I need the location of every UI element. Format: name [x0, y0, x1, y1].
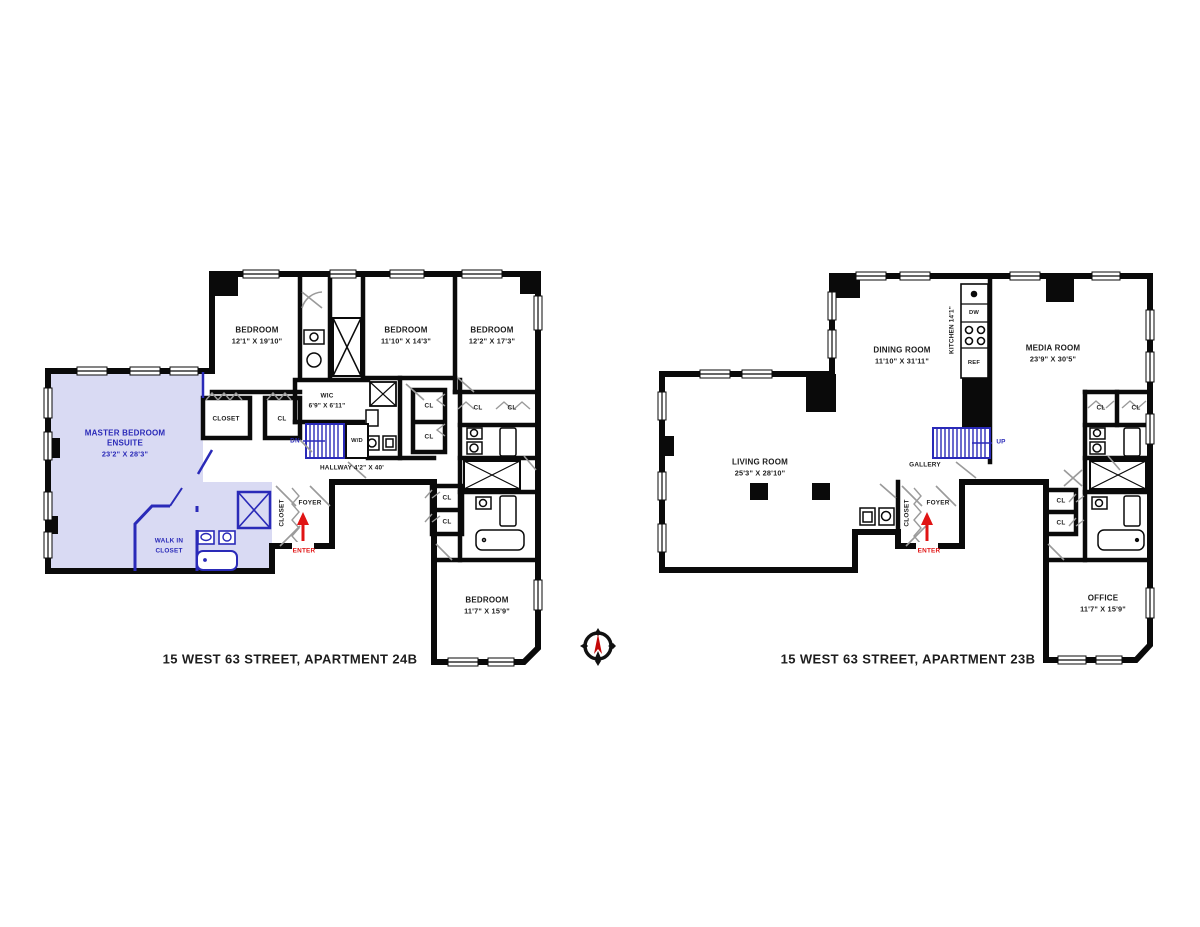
room-label-foyer: FOYER	[298, 500, 321, 507]
room-label-gallery: GALLERY	[909, 462, 941, 469]
room-dims-bedroom-n: 11'10" X 14'3"	[381, 337, 431, 346]
cl-label: CL	[425, 434, 434, 441]
toilet-icon	[307, 353, 321, 367]
stairs-dn-label: DN	[290, 438, 300, 445]
room-dims-dining: 11'10" X 31'11"	[875, 357, 929, 366]
room-label-kitchen: KITCHEN 14'1"	[949, 306, 956, 354]
plan-title-23b: 15 WEST 63 STREET, APARTMENT 23B	[781, 652, 1036, 667]
stairs-up-label: UP	[996, 439, 1005, 446]
room-label-master-bedroom: MASTER BEDROOM	[85, 429, 166, 438]
room-dims-living: 25'3" X 28'10"	[735, 469, 786, 478]
room-label-living: LIVING ROOM	[732, 458, 788, 467]
stairs-up-icon	[933, 428, 992, 458]
room-label-master-ensuite: ENSUITE	[107, 439, 143, 448]
compass-icon	[575, 620, 621, 676]
room-label-wic: WIC	[320, 393, 333, 400]
room-label-bedroom-s: BEDROOM	[465, 596, 508, 605]
bathtub-icon	[1124, 496, 1140, 526]
floorplan-page: MASTER BEDROOM ENSUITE 23'2" X 28'3" BED…	[0, 0, 1200, 927]
foyer-closet-label: CLOSET	[904, 499, 911, 526]
room-label-foyer: FOYER	[926, 500, 949, 507]
cl-label: CL	[474, 405, 483, 412]
room-dims-media: 23'9" X 30'5"	[1030, 355, 1076, 364]
bathtub-icon	[197, 551, 237, 570]
room-label-walk-in-closet2: CLOSET	[155, 548, 182, 555]
enter-label: ENTER	[918, 548, 941, 555]
room-label-bedroom-n: BEDROOM	[384, 326, 427, 335]
cl-label: CL	[443, 495, 452, 502]
room-label-hallway: HALLWAY 4'2" X 40'	[320, 465, 384, 472]
cl-label: CL	[1132, 405, 1141, 412]
linen-closet-icon	[370, 382, 396, 406]
room-label-bedroom-nw: BEDROOM	[235, 326, 278, 335]
washer-dryer-label: W/D	[351, 438, 363, 444]
bathtub-icon	[500, 496, 516, 526]
room-label-bedroom-ne: BEDROOM	[470, 326, 513, 335]
room-dims-bedroom-ne: 12'2" X 17'3"	[469, 337, 515, 346]
shower-icon	[464, 461, 520, 489]
cl-label: CL	[508, 405, 517, 412]
plan-title-24b: 15 WEST 63 STREET, APARTMENT 24B	[163, 652, 418, 667]
dishwasher-label: DW	[969, 310, 979, 316]
room-label-office: OFFICE	[1088, 594, 1119, 603]
cl-label: CL	[1057, 498, 1066, 505]
cl-label: CL	[443, 519, 452, 526]
bathtub-icon	[1124, 428, 1140, 456]
foyer-closet-label: CLOSET	[279, 499, 286, 526]
room-dims-master: 23'2" X 28'3"	[102, 450, 148, 459]
cl-label: CL	[278, 416, 287, 423]
room-label-media: MEDIA ROOM	[1026, 344, 1081, 353]
refrigerator-label: REF	[968, 360, 980, 366]
cl-label: CL	[1097, 405, 1106, 412]
shaft-icon	[333, 318, 361, 376]
enter-label: ENTER	[293, 548, 316, 555]
cl-label: CL	[425, 403, 434, 410]
room-label-walk-in-closet: WALK IN	[155, 538, 183, 545]
column	[750, 483, 768, 500]
column	[812, 483, 830, 500]
shower-icon	[1090, 461, 1146, 489]
room-dims-bedroom-s: 11'7" X 15'9"	[464, 607, 510, 616]
room-dims-bedroom-nw: 12'1" X 19'10"	[232, 337, 283, 346]
room-dims-wic: 6'9" X 6'11"	[309, 403, 346, 410]
room-dims-office: 11'7" X 15'9"	[1080, 605, 1126, 614]
room-label-dining: DINING ROOM	[873, 346, 930, 355]
stairs-down-icon	[303, 424, 344, 458]
cl-label: CL	[1057, 520, 1066, 527]
bathtub-icon	[500, 428, 516, 456]
closet-label: CLOSET	[212, 416, 239, 423]
